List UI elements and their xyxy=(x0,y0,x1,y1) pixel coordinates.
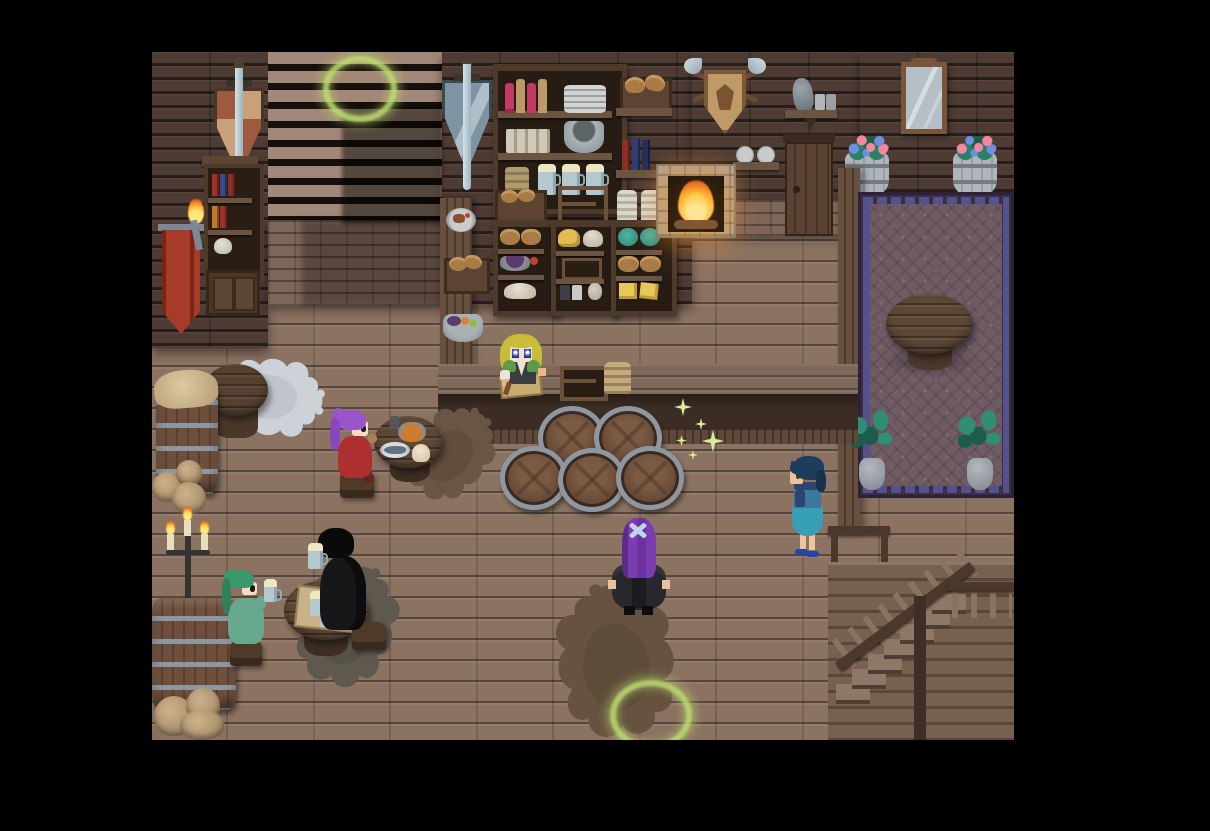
grapes xyxy=(447,316,461,326)
rail-post xyxy=(881,534,888,562)
flower-barrel-right xyxy=(949,126,1001,198)
soup-pot xyxy=(398,422,426,442)
small-crate xyxy=(562,258,602,280)
torch-left xyxy=(186,198,208,256)
door-lintel xyxy=(783,134,835,142)
bread-wall-shelf xyxy=(616,76,672,124)
player-boot xyxy=(624,606,635,615)
torch-sconce xyxy=(190,220,203,251)
side-barrel xyxy=(616,446,684,510)
door-handle xyxy=(793,186,800,193)
bookshelf xyxy=(202,156,258,312)
bread xyxy=(640,256,661,272)
grape-bowl xyxy=(500,256,530,271)
barrel-cloth-cover xyxy=(153,368,219,410)
mashed-dish xyxy=(412,444,430,462)
crest-emblem xyxy=(716,84,734,110)
shelf-board xyxy=(498,153,612,160)
bread-crate xyxy=(620,78,672,112)
fire-core xyxy=(686,192,706,222)
villager-hair-back xyxy=(816,470,826,492)
stair-step xyxy=(884,639,918,655)
door[interactable] xyxy=(783,134,835,236)
flowers xyxy=(953,132,997,160)
stair-step xyxy=(836,684,870,700)
bread-loaf xyxy=(625,77,645,93)
candle xyxy=(167,534,174,550)
villager-shoe xyxy=(806,551,819,557)
woven-basket xyxy=(604,362,631,394)
plant-leaves xyxy=(958,410,1002,462)
bookshelf-cabinet xyxy=(206,270,260,316)
plant-pot xyxy=(967,458,993,490)
book xyxy=(220,206,227,228)
sword-blade xyxy=(463,64,471,190)
book xyxy=(220,174,227,196)
player-hand xyxy=(608,580,616,589)
counter-rack xyxy=(560,366,608,401)
stair-step xyxy=(868,654,902,670)
flour-sack xyxy=(617,190,637,222)
stair-post xyxy=(914,596,926,740)
shelf-board xyxy=(498,249,544,254)
fruit-bowl xyxy=(443,314,483,342)
apple xyxy=(469,319,477,327)
candle xyxy=(201,534,208,550)
cabbage xyxy=(618,228,638,246)
food-shelf-1 xyxy=(493,220,559,316)
bookshelf-body xyxy=(204,164,264,280)
grey-jug xyxy=(791,77,816,113)
bottle-tan xyxy=(538,79,547,113)
mirror xyxy=(901,58,947,134)
berry xyxy=(465,213,470,218)
drinker-ponytail xyxy=(222,578,231,614)
alcove-table xyxy=(886,294,972,354)
barmaid-eye xyxy=(524,349,531,358)
bread-in-hand xyxy=(368,434,377,443)
landing-railing xyxy=(948,582,1014,591)
meat-plate xyxy=(446,208,476,232)
book xyxy=(632,138,640,170)
cabinet-door xyxy=(213,277,234,311)
jar xyxy=(560,285,570,300)
large-bowl xyxy=(564,121,604,153)
screenshot-root: { "app": {"name": "pixel-rpg", "scene": … xyxy=(0,0,1210,831)
bookshelf-board xyxy=(208,230,252,235)
food-shelf-2 xyxy=(551,220,619,316)
small-mug xyxy=(826,94,836,110)
player-hand xyxy=(662,580,670,589)
bottle-pink xyxy=(505,83,514,113)
rack-bar xyxy=(562,202,596,206)
axe-head xyxy=(684,58,702,74)
meat xyxy=(453,214,465,223)
staircase-shadow-lower xyxy=(302,220,442,306)
bread-loaf xyxy=(501,190,518,203)
table-mug xyxy=(390,416,399,428)
rack-bar xyxy=(564,379,596,383)
supply-sack xyxy=(180,710,224,740)
stair-step xyxy=(852,669,886,685)
bread xyxy=(521,229,541,245)
tomato xyxy=(530,257,538,265)
candle-flame xyxy=(166,520,175,535)
diner-shoe xyxy=(364,476,374,482)
character-green-drinker[interactable] xyxy=(222,570,280,670)
villager-sleeve xyxy=(795,490,805,507)
axe-head xyxy=(748,58,766,74)
jar xyxy=(572,285,582,300)
trophy-crest xyxy=(704,70,746,134)
logs xyxy=(674,220,718,229)
flour-pile xyxy=(504,283,536,299)
candle-flame xyxy=(200,520,209,535)
bread xyxy=(618,256,639,272)
character-barmaid[interactable] xyxy=(500,332,546,396)
bottle-pink xyxy=(527,83,536,113)
robed-beer-mug xyxy=(308,550,323,569)
raised-beer-mug xyxy=(264,586,277,602)
bottle-tan xyxy=(516,79,525,113)
villager-skirt xyxy=(792,504,823,536)
landing-balusters xyxy=(952,592,1012,618)
sparkle xyxy=(688,450,698,460)
cup-row xyxy=(506,129,550,153)
small-mug xyxy=(815,94,825,110)
cheese-block xyxy=(639,282,659,300)
fireplace xyxy=(656,164,736,238)
bookshelf-board xyxy=(208,198,252,203)
player-boot xyxy=(642,606,653,615)
cabinet-door xyxy=(234,277,255,311)
book xyxy=(228,174,235,196)
barmaid-hand xyxy=(538,368,546,376)
shelf-board xyxy=(733,162,779,170)
book xyxy=(642,140,650,170)
shelf-bracket xyxy=(805,118,817,130)
jug-shelf xyxy=(785,76,837,132)
mirror-glass xyxy=(906,67,942,129)
flowers xyxy=(845,132,889,160)
book xyxy=(622,140,630,170)
book xyxy=(212,174,219,196)
bread xyxy=(500,229,520,245)
glow-ring-bottom[interactable] xyxy=(610,680,692,740)
candle xyxy=(184,520,191,536)
character-purple-diner[interactable] xyxy=(330,408,388,502)
pot-on-shelf xyxy=(214,238,232,254)
staircase-shadow xyxy=(342,106,442,224)
shelf-board xyxy=(785,110,837,118)
trophy-pennant-center xyxy=(438,58,494,196)
cheese-wheel xyxy=(558,229,580,247)
cheese-block xyxy=(619,283,637,299)
shelf-board xyxy=(498,275,544,280)
flour-sack-small xyxy=(583,230,603,247)
pillar-bread-crate xyxy=(444,258,490,294)
shelf-board xyxy=(616,108,672,116)
potted-plant-right xyxy=(956,410,1004,494)
shelf-board xyxy=(616,250,662,255)
character-blue-villager[interactable] xyxy=(788,456,832,560)
plate-stack xyxy=(564,85,606,113)
diner-ponytail xyxy=(330,418,340,450)
diner-arm xyxy=(356,444,368,460)
bread-loaf xyxy=(518,189,535,202)
barmaid-eye xyxy=(512,349,519,358)
hunting-trophy xyxy=(682,58,768,142)
shelf-board xyxy=(556,251,604,256)
rail-post xyxy=(831,534,838,562)
candle-flame xyxy=(183,506,192,521)
character-player[interactable] xyxy=(608,518,670,618)
robed-cloak xyxy=(320,556,366,630)
bread-loaf xyxy=(643,73,666,93)
jug-small xyxy=(588,283,602,300)
barmaid-fringe xyxy=(509,341,533,348)
character-black-robed[interactable] xyxy=(308,526,388,650)
book xyxy=(212,206,219,228)
shelf-board xyxy=(616,276,662,281)
orange xyxy=(461,317,469,325)
plate-shelf xyxy=(733,146,779,182)
game-viewport xyxy=(152,52,1014,740)
glow-ring-top[interactable] xyxy=(323,56,397,122)
plant-pot xyxy=(859,458,885,490)
firebox xyxy=(668,176,724,232)
